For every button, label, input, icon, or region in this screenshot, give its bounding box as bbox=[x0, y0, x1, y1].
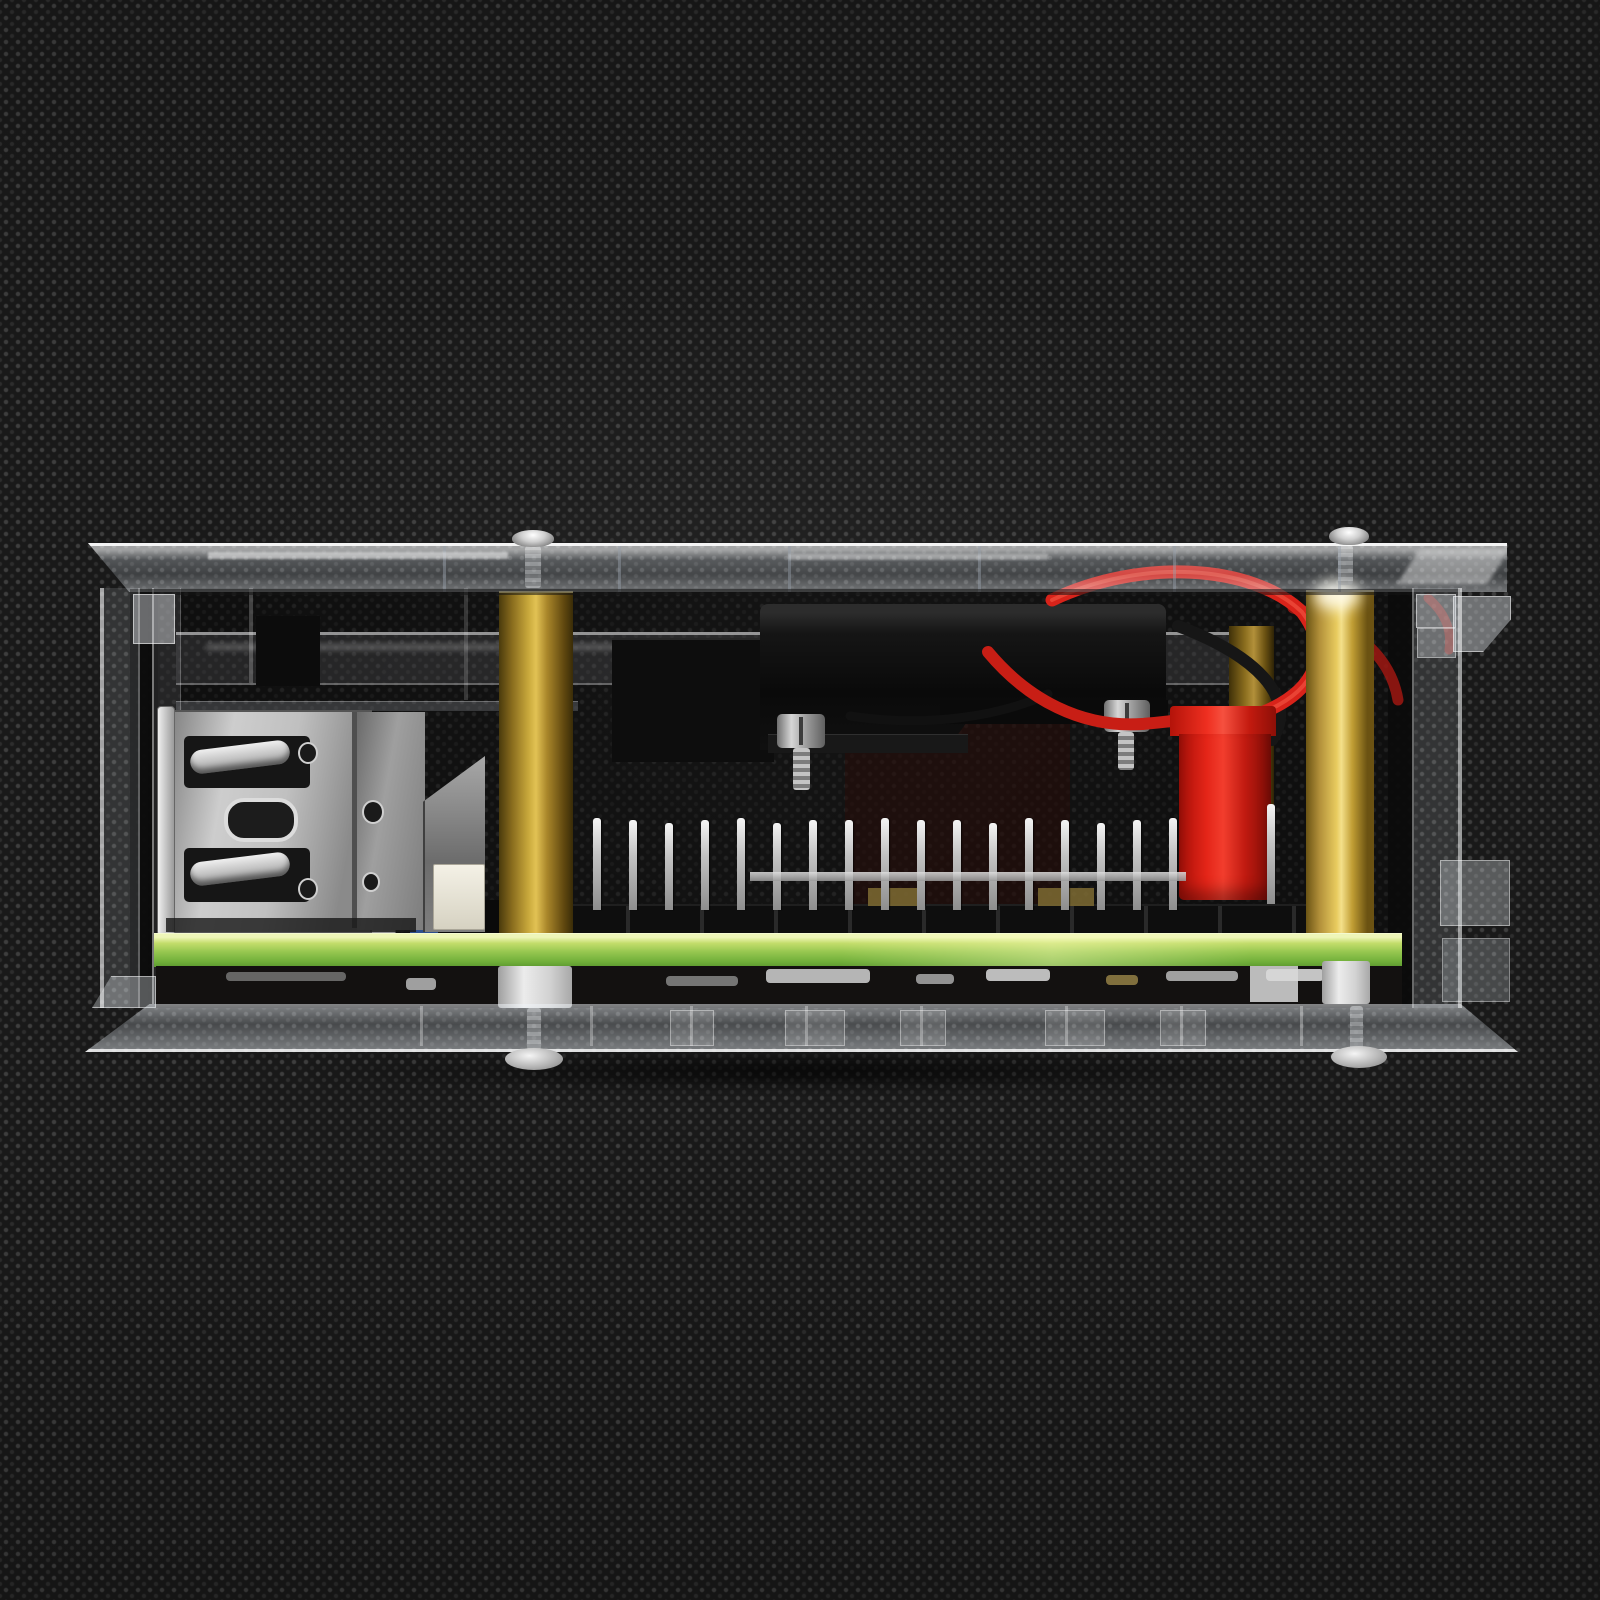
bottom-plate-tab-slot bbox=[1160, 1010, 1206, 1046]
gpio-pin bbox=[737, 818, 745, 910]
usb-port-lip bbox=[157, 706, 175, 936]
bottom-plate-tab-slot bbox=[785, 1010, 845, 1046]
gpio-pins bbox=[593, 818, 1193, 912]
side-panel-left bbox=[100, 588, 140, 1008]
dark-block-a bbox=[256, 616, 320, 686]
usb-hole-c bbox=[362, 800, 384, 824]
gpio-pin bbox=[953, 820, 961, 910]
gpio-pin bbox=[593, 818, 601, 910]
gpio-pin bbox=[881, 818, 889, 910]
spacer-left bbox=[498, 966, 572, 1008]
usb-slot-top bbox=[184, 736, 310, 788]
gpio-pin bbox=[989, 823, 997, 910]
top-plate-glare bbox=[1397, 550, 1508, 584]
dark-block-b bbox=[612, 638, 774, 762]
spacer-right bbox=[1322, 961, 1370, 1004]
top-plate-seam bbox=[978, 546, 981, 592]
top-screw-left-head bbox=[512, 530, 554, 547]
white-component bbox=[433, 864, 485, 930]
gpio-pin-extra bbox=[1267, 804, 1275, 904]
gpio-pin bbox=[845, 820, 853, 910]
gpio-pin bbox=[701, 820, 709, 910]
bottom-plate-tab-slot bbox=[1045, 1010, 1105, 1046]
gpio-pin bbox=[629, 820, 637, 910]
fan-screw-left-shaft bbox=[793, 748, 810, 790]
solder-joint bbox=[226, 972, 346, 981]
solder-joint bbox=[406, 978, 436, 990]
acrylic-seam-b bbox=[464, 588, 468, 700]
wire-black-under-fan bbox=[850, 694, 1048, 721]
bottom-plate-tab-slot bbox=[670, 1010, 714, 1046]
usb-slot-bottom bbox=[184, 848, 310, 902]
gpio-pin bbox=[1061, 820, 1069, 910]
gpio-pin bbox=[917, 820, 925, 910]
top-plate-seam bbox=[788, 546, 791, 592]
right-outer-tab-bottom bbox=[1442, 938, 1510, 1002]
usb-hole-a bbox=[298, 742, 318, 764]
product-photo bbox=[0, 0, 1600, 1600]
pcb-underside bbox=[156, 966, 1402, 1008]
pcb-edge bbox=[154, 933, 1402, 967]
gpio-pin bbox=[1169, 818, 1177, 910]
standoff-right bbox=[1306, 590, 1374, 937]
gpio-pin bbox=[1025, 818, 1033, 910]
solder-joint bbox=[766, 969, 870, 983]
top-plate bbox=[88, 543, 1507, 592]
gpio-pin bbox=[773, 823, 781, 910]
bottom-plate-seam bbox=[420, 1006, 423, 1046]
fan-screw-left bbox=[777, 714, 825, 748]
usb-oval-cutout bbox=[224, 798, 298, 842]
top-plate-streak-b bbox=[788, 554, 1048, 560]
solder-joint bbox=[1166, 971, 1238, 981]
top-plate-seam bbox=[1338, 546, 1341, 592]
solder-joint bbox=[1106, 975, 1138, 985]
gpio-crossbar bbox=[750, 872, 1186, 881]
bottom-plate-seam bbox=[590, 1006, 593, 1046]
under-plate-shadow bbox=[130, 589, 1460, 595]
bottom-screw-right-head bbox=[1331, 1046, 1387, 1068]
gpio-pin bbox=[1133, 820, 1141, 910]
white-small-component bbox=[1250, 966, 1298, 1002]
standoff-left bbox=[499, 591, 573, 935]
bottom-plate-tab-slot bbox=[900, 1010, 946, 1046]
usb-bottom-shadow bbox=[166, 918, 416, 932]
bottom-plate bbox=[85, 1004, 1518, 1052]
right-outer-tab-mid bbox=[1440, 860, 1510, 926]
top-screw-right-head bbox=[1329, 527, 1369, 545]
solder-joint bbox=[666, 976, 738, 986]
solder-joint bbox=[916, 974, 954, 984]
bottom-screw-left-head bbox=[505, 1048, 563, 1070]
gpio-pin bbox=[1097, 823, 1105, 910]
gpio-pin bbox=[809, 820, 817, 910]
top-plate-seam bbox=[1173, 546, 1176, 592]
solder-joint bbox=[986, 969, 1050, 981]
bottom-plate-seam bbox=[1300, 1006, 1303, 1046]
gpio-pin bbox=[665, 823, 673, 910]
top-plate-seam bbox=[618, 546, 621, 592]
top-plate-streak-a bbox=[208, 552, 508, 559]
usb-hole-d bbox=[362, 872, 380, 892]
usb-hole-b bbox=[298, 878, 318, 900]
acrylic-seam-a bbox=[249, 588, 253, 683]
power-connector-lip bbox=[1170, 706, 1276, 736]
